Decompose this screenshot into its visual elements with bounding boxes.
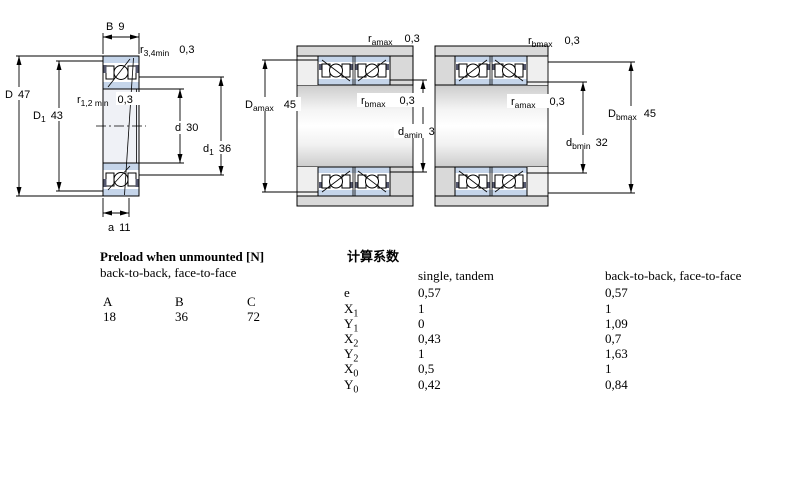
bearing-pair-top <box>455 56 527 85</box>
cage-left <box>106 173 114 186</box>
housing-top <box>297 46 413 56</box>
cage-right <box>128 173 136 186</box>
factor-value-single: 0,5 <box>418 362 434 376</box>
dim-label-ramax: ramax0,3 <box>368 33 420 47</box>
housing-shoulder <box>435 56 455 85</box>
housing-shoulder <box>390 167 413 196</box>
preload-subtitle: back-to-back, face-to-face <box>100 266 236 280</box>
factor-row: X1 <box>344 302 358 316</box>
factor-row: X2 <box>344 332 358 346</box>
dim-label-rbmax: rbmax0,3 <box>528 35 580 49</box>
housing-shoulder <box>390 56 413 85</box>
preload-col-A: A <box>103 295 112 309</box>
factor-value-single: 0,42 <box>418 378 441 392</box>
housing-bottom <box>297 196 413 206</box>
bearing-pair-bottom <box>455 167 527 196</box>
arrowheads <box>581 62 634 193</box>
bearing-section-bottom <box>103 163 139 196</box>
mounted-arrangement-b: rbmax0,3 ramax0,3 dbmin32 Dbmax45 <box>435 35 661 206</box>
factor-value-btb: 0,57 <box>605 286 628 300</box>
seal-mark <box>104 65 107 73</box>
side-gap <box>527 167 548 196</box>
seal-mark <box>104 179 107 187</box>
bearing-pair-bottom <box>318 167 390 196</box>
factor-value-single: 1 <box>418 347 425 361</box>
preload-title: Preload when unmounted [N] <box>100 250 264 264</box>
mounted-arrangement-a: ramax0,3 Damax45 rbmax0,3 damin32 <box>241 33 450 206</box>
factors-title: 计算系数 <box>347 250 399 264</box>
factor-value-single: 0 <box>418 317 425 331</box>
single-bearing-cross-section: B9 r3,4min0,3 D47 D143 r1,2 min0,3 d30 d… <box>5 21 234 234</box>
factor-row: e <box>344 286 350 300</box>
housing-bottom <box>435 196 548 206</box>
factor-value-single: 1 <box>418 302 425 316</box>
housing-shoulder <box>435 167 455 196</box>
factor-value-btb: 0,84 <box>605 378 628 392</box>
dim-label-d: d30 <box>175 122 198 134</box>
factors-col-single-tandem: single, tandem <box>418 269 494 283</box>
seal-mark <box>136 179 139 187</box>
bearing-pair-top <box>318 56 390 85</box>
seal-mark <box>136 65 139 73</box>
factors-col-back-to-back: back-to-back, face-to-face <box>605 269 741 283</box>
side-gap <box>527 56 548 85</box>
factor-value-single: 0,57 <box>418 286 441 300</box>
factor-value-btb: 1,63 <box>605 347 628 361</box>
ball <box>114 66 128 80</box>
cage-left <box>106 66 114 79</box>
preload-value-C: 72 <box>247 310 260 324</box>
dim-label-B: B9 <box>106 21 124 33</box>
factor-row: Y2 <box>344 347 358 361</box>
factor-value-btb: 1 <box>605 302 612 316</box>
preload-value-B: 36 <box>175 310 188 324</box>
factor-row: X0 <box>344 362 358 376</box>
factor-value-btb: 1,09 <box>605 317 628 331</box>
factor-value-single: 0,43 <box>418 332 441 346</box>
inner-ring <box>104 82 139 89</box>
preload-value-A: 18 <box>103 310 116 324</box>
factor-value-btb: 0,7 <box>605 332 621 346</box>
inner-ring <box>104 164 139 171</box>
factor-value-btb: 1 <box>605 362 612 376</box>
dim-label-a: a11 <box>108 222 131 234</box>
preload-col-C: C <box>247 295 256 309</box>
factor-row: Y1 <box>344 317 358 331</box>
dim-label-r34: r3,4min0,3 <box>140 44 194 58</box>
preload-col-B: B <box>175 295 184 309</box>
dim-label-D: D47 <box>5 89 30 101</box>
factor-row: Y0 <box>344 378 358 392</box>
outer-ring <box>104 189 139 196</box>
